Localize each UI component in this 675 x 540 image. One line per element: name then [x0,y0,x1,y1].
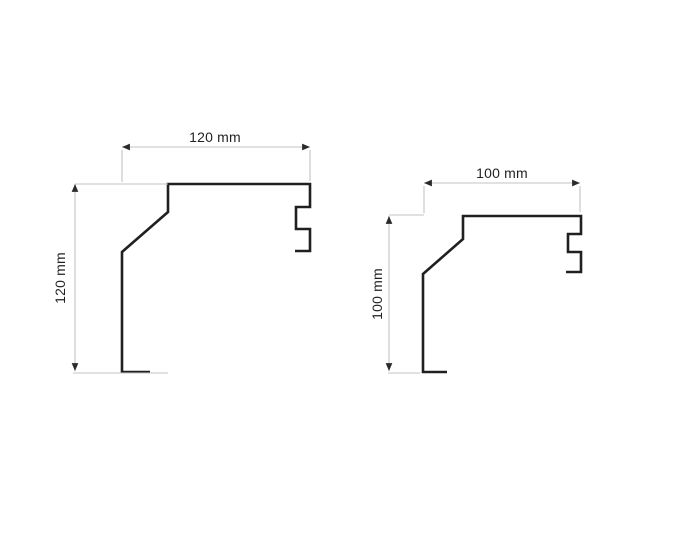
left-profile-group: 120 mm 120 mm [52,129,310,373]
left-width-dimension: 120 mm [122,129,310,182]
right-width-label: 100 mm [476,165,528,181]
left-height-dimension: 120 mm [52,184,168,373]
left-width-label: 120 mm [189,129,241,145]
left-height-label: 120 mm [52,252,68,304]
drawing-canvas: 120 mm 120 mm 100 mm [0,0,675,540]
left-profile-outline [122,184,310,372]
right-height-label: 100 mm [369,268,385,320]
profiles-technical-drawing: 120 mm 120 mm 100 mm [0,0,675,540]
right-width-dimension: 100 mm [424,165,580,213]
right-profile-group: 100 mm 100 mm [369,165,581,373]
right-height-dimension: 100 mm [369,215,424,373]
right-profile-outline [423,216,581,372]
